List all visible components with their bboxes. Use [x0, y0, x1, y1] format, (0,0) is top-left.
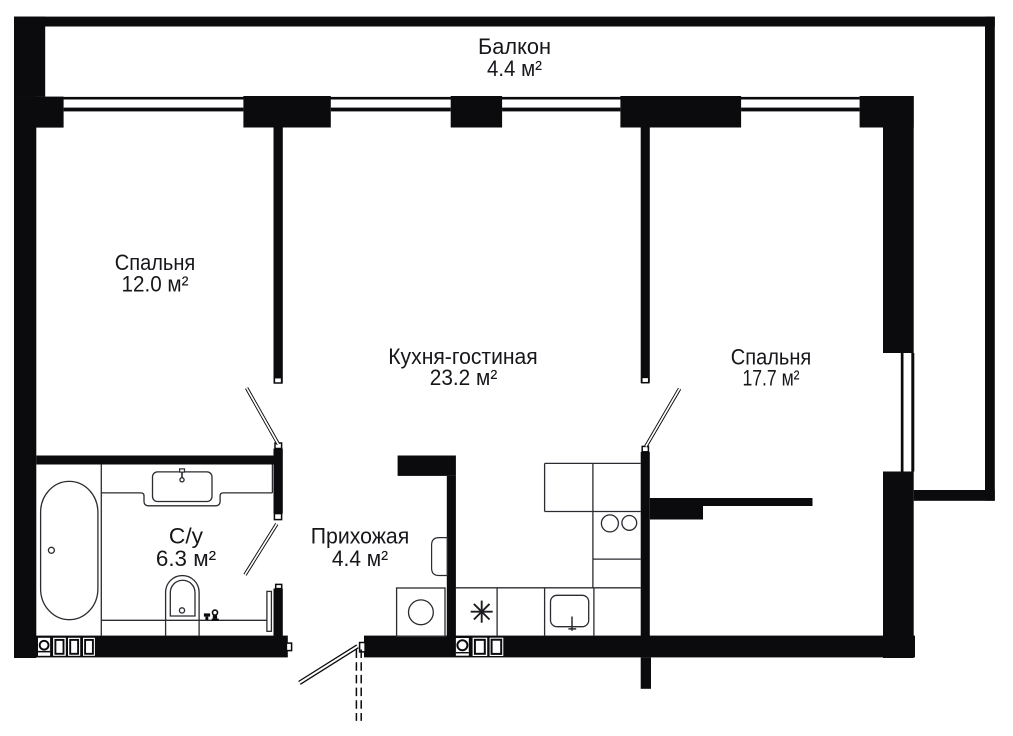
svg-text:6.3 м²: 6.3 м²	[156, 546, 216, 571]
svg-text:17.7 м²: 17.7 м²	[742, 366, 799, 391]
svg-text:12.0 м²: 12.0 м²	[122, 272, 189, 297]
svg-text:С/у: С/у	[169, 524, 203, 549]
svg-text:Прихожая: Прихожая	[311, 524, 410, 549]
svg-text:4.4 м²: 4.4 м²	[332, 546, 388, 571]
svg-text:4.4 м²: 4.4 м²	[487, 56, 542, 81]
svg-text:23.2 м²: 23.2 м²	[430, 365, 498, 390]
